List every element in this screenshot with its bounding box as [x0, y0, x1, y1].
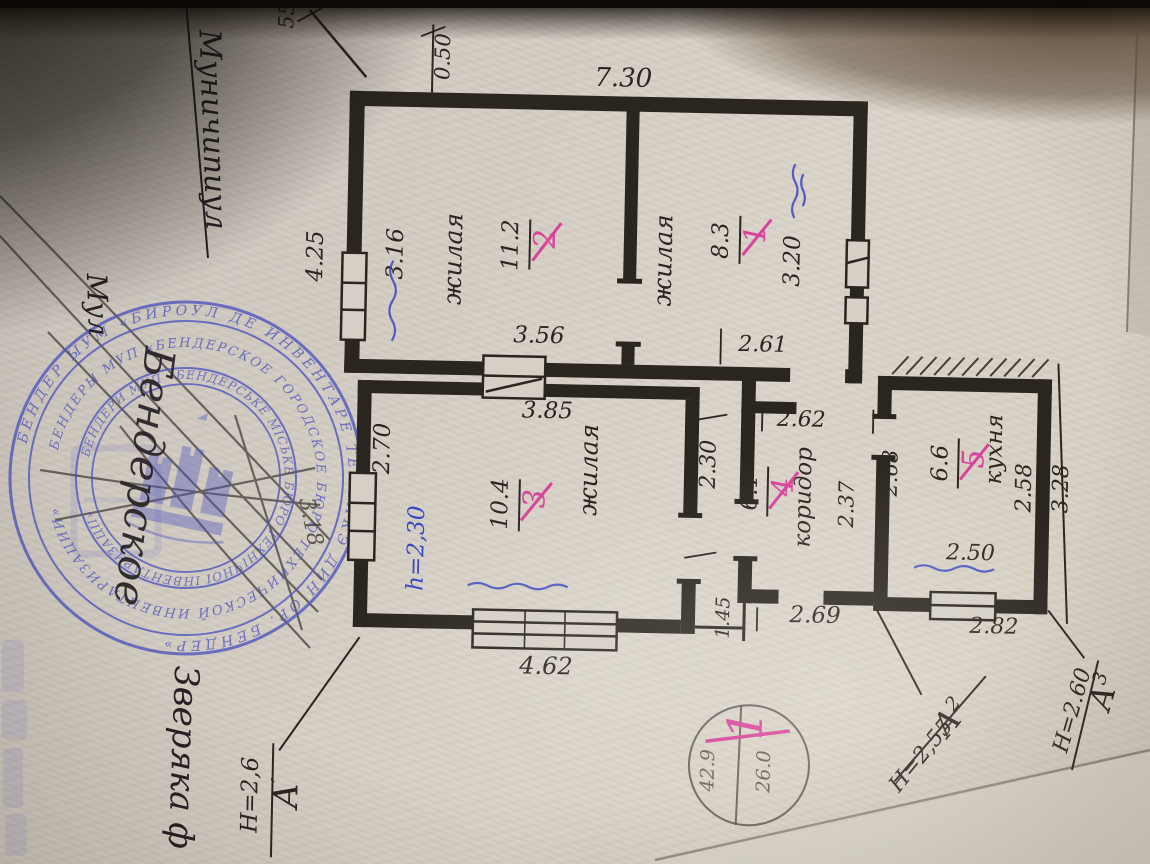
- dim-3-20: 3.20: [779, 235, 806, 287]
- dim-2-30: 2.30: [696, 440, 722, 490]
- dim-2-69: 2.69: [788, 602, 841, 629]
- dim-7-30: 7.30: [594, 63, 653, 94]
- dim-0-50: 0.50: [430, 33, 455, 80]
- dim-55-partial: 55: [274, 2, 299, 29]
- dim-2-68: 2.68: [878, 449, 903, 497]
- building-circle-marker: 1 42.9 26.0: [688, 704, 810, 826]
- room2-name: жилая: [438, 213, 469, 305]
- handwriting-over-stamp: Бендерское: [104, 344, 185, 610]
- dim-4-62: 4.62: [518, 651, 573, 680]
- dim-3-28: 3.28: [1048, 464, 1074, 514]
- room4-area: 6.1: [736, 474, 763, 511]
- dim-1-45: 1.45: [712, 596, 735, 639]
- room2-number: 2: [528, 229, 563, 250]
- handwriting-mid: Мул: [80, 272, 115, 337]
- marker-a2-height: Н=2,55: [884, 714, 959, 798]
- dim-2-61: 2.61: [737, 332, 787, 358]
- dim-2-70: 2.70: [369, 423, 396, 476]
- handwriting: Муничипиул Мул Бендерское Зверяка ф 3.18: [80, 2, 328, 850]
- dim-4-25: 4.25: [302, 230, 329, 283]
- marker-a3-height: Н=2.60: [1048, 665, 1096, 756]
- room3-area: 10.4: [487, 478, 514, 530]
- dim-2-58: 2.58: [1011, 463, 1037, 513]
- room3-name: жилая: [573, 424, 604, 516]
- dim-3-16: 3.16: [382, 228, 409, 280]
- room5-area: 6.6: [927, 445, 954, 482]
- handwriting-top: Муничипиул: [191, 28, 233, 230]
- circle-right-value: 26.0: [752, 750, 775, 794]
- dim-2-50: 2.50: [945, 540, 995, 566]
- room1-name: жилая: [648, 214, 679, 306]
- round-stamp: БЕНДЕР ЫУМ «БИРОУЛ ДЕ ИНВЕНТАРЕ ТЕХНИКЭ …: [0, 269, 395, 686]
- handwriting-bottom: Зверяка ф: [160, 665, 206, 850]
- floor-plan-drawing: БЕНДЕР ЫУМ «БИРОУЛ ДЕ ИНВЕНТАРЕ ТЕХНИКЭ …: [0, 0, 1150, 864]
- dim-2-82: 2.82: [968, 614, 1018, 640]
- room2-area: 11.2: [497, 219, 524, 271]
- dim-2-62: 2.62: [775, 407, 825, 433]
- circle-left-value: 42.9: [696, 749, 719, 793]
- dim-3-56: 3.56: [513, 322, 565, 349]
- marker-a1-letter: А′: [266, 778, 307, 812]
- marker-a1-height: Н=2,6: [236, 757, 264, 834]
- blue-height-note: h=2,30: [403, 505, 431, 591]
- room1-area: 8.3: [708, 222, 735, 259]
- dim-2-37: 2.37: [834, 480, 859, 529]
- room5-number: 5: [956, 449, 991, 469]
- dim-3-85: 3.85: [521, 397, 573, 424]
- wall-hatching: [892, 356, 1048, 377]
- room4-number: 4: [766, 477, 801, 498]
- scanned-floor-plan-photo: БЕНДЕР ЫУМ «БИРОУЛ ДЕ ИНВЕНТАРЕ ТЕХНИКЭ …: [0, 0, 1150, 864]
